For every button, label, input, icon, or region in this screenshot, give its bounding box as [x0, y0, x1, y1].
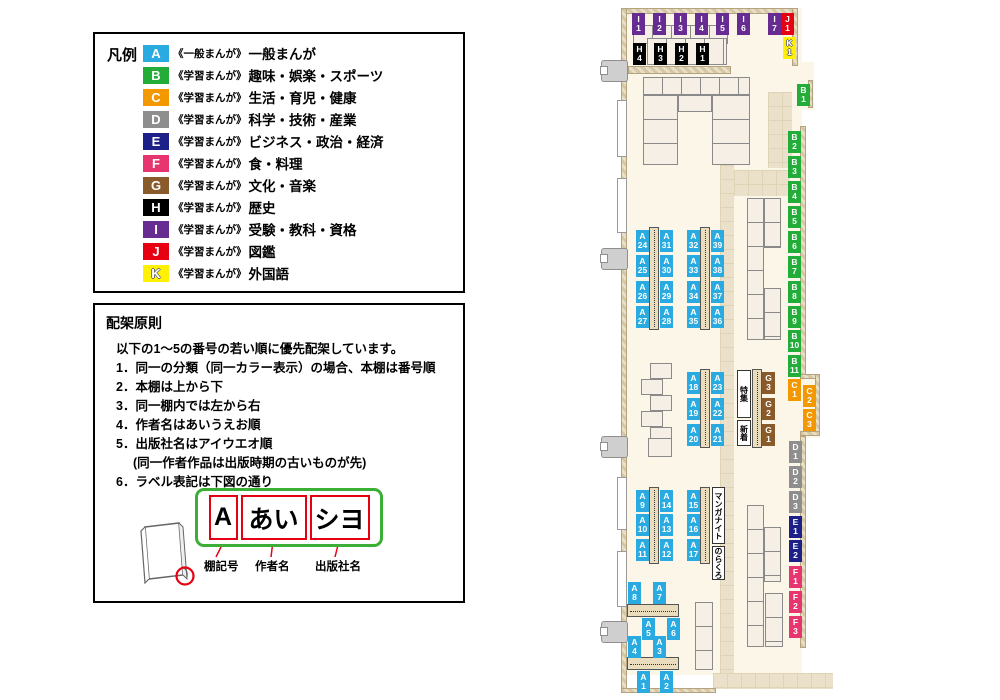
series-label: 《学習まんが》 — [173, 112, 247, 127]
door — [601, 60, 628, 82]
shelf-number: 10 — [790, 341, 799, 351]
shelf-number: 9 — [792, 317, 797, 327]
legend-item-b: B《学習まんが》趣味・娯楽・スポーツ — [143, 64, 384, 86]
shelf-number: 4 — [792, 192, 797, 202]
shelf-number: 7 — [772, 24, 777, 34]
shelf-label-c3: C3 — [803, 409, 816, 431]
shelf-label-a29: A29 — [660, 281, 673, 303]
shelf-number: 29 — [662, 292, 671, 302]
shelf-number: 2 — [679, 54, 684, 64]
shelf-label-a17: A17 — [687, 539, 700, 561]
category-badge-k: K — [143, 265, 169, 282]
series-label: 《学習まんが》 — [173, 90, 247, 105]
shelf-number: 36 — [713, 317, 722, 327]
shelf-block — [765, 593, 783, 647]
door — [601, 436, 628, 458]
wall-pillar — [617, 100, 627, 157]
shelf-number: 1 — [793, 452, 798, 462]
shelf-label-a8: A8 — [628, 582, 641, 604]
shelf-number: 31 — [662, 241, 671, 251]
shelf-label-a11: A11 — [636, 539, 649, 561]
shelf-label-c2: C2 — [803, 385, 816, 407]
shelf-number: 14 — [662, 501, 671, 511]
series-label: 《学習まんが》 — [173, 244, 247, 259]
page: { "legend": { "title": "凡例", "items": [ … — [0, 0, 1000, 700]
shelf-number: 37 — [713, 292, 722, 302]
shelf-number: 6 — [792, 242, 797, 252]
category-label: 受験・教科・資格 — [249, 219, 357, 239]
shelf-number: 4 — [632, 647, 637, 657]
map-corridor — [734, 170, 790, 196]
shelf-number: 2 — [807, 396, 812, 406]
rule-item-2: 2．本棚は上から下 — [116, 378, 435, 397]
shelf-number: 6 — [671, 629, 676, 639]
caption-author: 作者名 — [255, 558, 290, 574]
shelf-number: 19 — [689, 409, 698, 419]
shelf-number: 5 — [720, 24, 725, 34]
category-badge-b: B — [143, 67, 169, 84]
shelf-number: 3 — [793, 627, 798, 637]
shelf-number: 38 — [713, 266, 722, 276]
shelf-number: 1 — [792, 390, 797, 400]
shelf-label-h1: H1 — [696, 43, 709, 65]
label-shelf-code: A — [209, 495, 238, 540]
shelf-number: 1 — [793, 527, 798, 537]
map-note-2: 新着 — [737, 420, 751, 446]
shelf-block — [764, 527, 781, 582]
category-badge-c: C — [143, 89, 169, 106]
shelf-number: 13 — [662, 525, 671, 535]
shelf-label-a6: A6 — [667, 618, 680, 640]
series-label: 《一般まんが》 — [173, 46, 247, 61]
category-badge-e: E — [143, 133, 169, 150]
map-note-1: 特集 — [737, 370, 751, 418]
shelf-number: 1 — [636, 24, 641, 34]
shelf-number: 12 — [662, 550, 671, 560]
shelf-label-a38: A38 — [711, 255, 724, 277]
shelf-number: 2 — [766, 409, 771, 419]
shelf-label-d2: D2 — [789, 466, 802, 488]
shelf-label-a12: A12 — [660, 539, 673, 561]
shelf-number: 16 — [689, 525, 698, 535]
display-table — [650, 395, 672, 411]
category-label: 一般まんが — [249, 43, 317, 63]
shelf-label-a25: A25 — [636, 255, 649, 277]
shelf-label-a28: A28 — [660, 306, 673, 328]
shelf-strip — [627, 657, 679, 670]
shelf-number: 4 — [699, 24, 704, 34]
shelf-number: 30 — [662, 266, 671, 276]
shelf-number: 3 — [793, 502, 798, 512]
shelf-label-a10: A10 — [636, 514, 649, 536]
shelf-label-i3: I3 — [674, 13, 687, 35]
shelf-number: 2 — [657, 24, 662, 34]
label-publisher: シヨ — [310, 495, 370, 540]
shelf-number: 25 — [638, 266, 647, 276]
legend-item-e: E《学習まんが》ビジネス・政治・経済 — [143, 130, 384, 152]
display-table — [648, 438, 672, 457]
shelf-number: 27 — [638, 317, 647, 327]
shelf-label-b8: B8 — [788, 281, 801, 303]
legend-item-i: I《学習まんが》受験・教科・資格 — [143, 218, 384, 240]
shelf-number: 3 — [807, 420, 812, 430]
map-corridor — [713, 673, 833, 689]
shelf-number: 11 — [638, 550, 647, 560]
shelf-number: 33 — [689, 266, 698, 276]
shelf-number: 1 — [793, 577, 798, 587]
shelf-number: 28 — [662, 317, 671, 327]
shelf-label-k1: K1 — [783, 37, 796, 59]
shelf-label-a35: A35 — [687, 306, 700, 328]
shelf-number: 18 — [689, 383, 698, 393]
shelf-label-i2: I2 — [653, 13, 666, 35]
shelf-label-a39: A39 — [711, 230, 724, 252]
shelf-number: 1 — [801, 95, 806, 105]
shelf-number: 4 — [637, 54, 642, 64]
shelf-label-i4: I4 — [695, 13, 708, 35]
shelf-number: 35 — [689, 317, 698, 327]
series-label: 《学習まんが》 — [173, 68, 247, 83]
shelf-label-e1: E1 — [789, 516, 802, 538]
shelf-label-a16: A16 — [687, 514, 700, 536]
wall-pillar — [617, 477, 627, 530]
category-badge-g: G — [143, 177, 169, 194]
shelf-label-b1: B1 — [797, 84, 810, 106]
category-label: 食・料理 — [249, 153, 303, 173]
category-label: 科学・技術・産業 — [249, 109, 357, 129]
shelf-label-g2: G2 — [762, 398, 775, 420]
shelf-label-a15: A15 — [687, 490, 700, 512]
shelf-block — [747, 198, 764, 340]
legend-item-j: J《学習まんが》図鑑 — [143, 240, 384, 262]
shelf-label-a37: A37 — [711, 281, 724, 303]
category-label: 歴史 — [249, 197, 276, 217]
shelf-label-c1: C1 — [788, 379, 801, 401]
shelf-label-i6: I6 — [737, 13, 750, 35]
shelf-block — [764, 288, 781, 340]
legend-item-d: D《学習まんが》科学・技術・産業 — [143, 108, 384, 130]
shelf-label-d1: D1 — [789, 441, 802, 463]
shelf-label-a2: A2 — [660, 671, 673, 693]
rule-item-3: 3．同一棚内では左から右 — [116, 397, 435, 416]
shelf-number: 2 — [793, 551, 798, 561]
shelf-number: 21 — [713, 435, 722, 445]
shelf-strip — [752, 369, 762, 448]
shelf-number: 1 — [766, 435, 771, 445]
series-label: 《学習まんが》 — [173, 156, 247, 171]
legend-item-c: C《学習まんが》生活・育児・健康 — [143, 86, 384, 108]
display-table — [641, 411, 663, 427]
series-label: 《学習まんが》 — [173, 134, 247, 149]
shelf-label-a23: A23 — [711, 372, 724, 394]
shelf-strip — [649, 487, 659, 564]
shelf-label-i7: I7 — [768, 13, 781, 35]
legend-item-f: F《学習まんが》食・料理 — [143, 152, 384, 174]
shelf-label-a36: A36 — [711, 306, 724, 328]
shelf-block — [747, 505, 764, 647]
shelf-label-a13: A13 — [660, 514, 673, 536]
shelf-number: 2 — [664, 682, 669, 692]
shelf-label-a4: A4 — [628, 636, 641, 658]
shelf-number: 17 — [689, 550, 698, 560]
legend-item-a: A《一般まんが》一般まんが — [143, 42, 384, 64]
shelf-label-a27: A27 — [636, 306, 649, 328]
rule-item-1: 1．同一の分類（同一カラー表示）の場合、本棚は番号順 — [116, 359, 435, 378]
shelf-number: 9 — [640, 501, 645, 511]
shelf-number: 32 — [689, 241, 698, 251]
shelf-label-g1: G1 — [762, 424, 775, 446]
shelf-number: 11 — [790, 366, 799, 376]
rules-panel: 配架原則 以下の1〜5の番号の若い順に優先配架しています。 1．同一の分類（同一… — [93, 303, 465, 603]
shelf-label-a14: A14 — [660, 490, 673, 512]
shelf-label-b4: B4 — [788, 181, 801, 203]
wall-pillar — [617, 551, 627, 607]
door — [601, 621, 628, 643]
shelf-label-a1: A1 — [637, 671, 650, 693]
shelf-label-a20: A20 — [687, 424, 700, 446]
shelf-label-b6: B6 — [788, 231, 801, 253]
shelf-number: 3 — [657, 647, 662, 657]
legend-item-g: G《学習まんが》文化・音楽 — [143, 174, 384, 196]
shelf-number: 5 — [646, 629, 651, 639]
shelf-label-f1: F1 — [789, 566, 802, 588]
map-note-3: マンガナイト — [712, 487, 725, 544]
shelf-label-a9: A9 — [636, 490, 649, 512]
rules-intro: 以下の1〜5の番号の若い順に優先配架しています。 — [116, 338, 403, 357]
shelf-label-h3: H3 — [654, 43, 667, 65]
shelf-number: 22 — [713, 409, 722, 419]
shelf-strip — [700, 369, 710, 448]
category-label: 外国語 — [249, 263, 290, 283]
legend-item-k: K《学習まんが》外国語 — [143, 262, 384, 284]
category-label: 趣味・娯楽・スポーツ — [249, 65, 384, 85]
shelf-number: 20 — [689, 435, 698, 445]
rules-list: 1．同一の分類（同一カラー表示）の場合、本棚は番号順2．本棚は上から下3．同一棚… — [116, 359, 435, 492]
shelf-number: 3 — [766, 383, 771, 393]
shelf-label-i5: I5 — [716, 13, 729, 35]
shelf-number: 6 — [741, 24, 746, 34]
shelf-number: 2 — [793, 602, 798, 612]
shelf-number: 7 — [657, 593, 662, 603]
shelf-label-e2: E2 — [789, 540, 802, 562]
legend-items: A《一般まんが》一般まんがB《学習まんが》趣味・娯楽・スポーツC《学習まんが》生… — [143, 42, 384, 284]
shelf-number: 1 — [700, 54, 705, 64]
shelf-block — [643, 77, 750, 95]
rule-item-5: 5．出版社名はアイウエオ順 — [116, 435, 435, 454]
shelf-label-a31: A31 — [660, 230, 673, 252]
shelf-label-a30: A30 — [660, 255, 673, 277]
shelf-number: 8 — [632, 593, 637, 603]
rules-title: 配架原則 — [106, 313, 162, 333]
shelf-strip — [700, 487, 710, 564]
label-example: A あい シヨ — [195, 488, 383, 547]
shelf-label-a19: A19 — [687, 398, 700, 420]
category-badge-j: J — [143, 243, 169, 260]
shelf-number: 26 — [638, 292, 647, 302]
shelf-number: 34 — [689, 292, 698, 302]
map-note-4: のらくろ — [712, 546, 725, 580]
shelf-label-g3: G3 — [762, 372, 775, 394]
series-label: 《学習まんが》 — [173, 200, 247, 215]
category-label: ビジネス・政治・経済 — [249, 131, 384, 151]
shelf-label-a3: A3 — [653, 636, 666, 658]
shelf-label-a18: A18 — [687, 372, 700, 394]
shelf-label-b11: B11 — [788, 355, 801, 377]
caption-publisher: 出版社名 — [315, 558, 361, 574]
shelf-strip — [627, 604, 679, 617]
shelf-number: 23 — [713, 383, 722, 393]
shelf-label-h4: H4 — [633, 43, 646, 65]
door — [601, 248, 628, 270]
legend-title: 凡例 — [107, 44, 137, 65]
label-author: あい — [241, 495, 307, 540]
shelf-number: 3 — [792, 167, 797, 177]
shelf-block — [678, 95, 712, 112]
shelf-label-b10: B10 — [788, 330, 801, 352]
shelf-label-a32: A32 — [687, 230, 700, 252]
wall-pillar — [617, 178, 627, 233]
shelf-number: 1 — [787, 48, 792, 58]
shelf-number: 2 — [793, 477, 798, 487]
legend-item-h: H《学習まんが》歴史 — [143, 196, 384, 218]
shelf-label-f2: F2 — [789, 591, 802, 613]
shelf-label-b5: B5 — [788, 206, 801, 228]
shelf-label-a21: A21 — [711, 424, 724, 446]
category-label: 文化・音楽 — [249, 175, 317, 195]
shelf-label-a34: A34 — [687, 281, 700, 303]
shelf-label-b7: B7 — [788, 256, 801, 278]
caption-shelf-code: 棚記号 — [204, 558, 239, 574]
map-wall — [628, 66, 731, 74]
shelf-label-a33: A33 — [687, 255, 700, 277]
shelf-number: 5 — [792, 217, 797, 227]
shelf-number: 1 — [785, 24, 790, 34]
shelf-block — [712, 95, 750, 165]
shelf-label-b3: B3 — [788, 156, 801, 178]
shelf-strip — [649, 227, 659, 330]
shelf-strip — [700, 227, 710, 330]
shelf-label-f3: F3 — [789, 616, 802, 638]
shelf-label-a22: A22 — [711, 398, 724, 420]
shelf-number: 10 — [638, 525, 647, 535]
series-label: 《学習まんが》 — [173, 266, 247, 281]
display-table — [641, 379, 663, 395]
display-table — [650, 363, 672, 379]
shelf-number: 39 — [713, 241, 722, 251]
shelf-label-h2: H2 — [675, 43, 688, 65]
category-label: 生活・育児・健康 — [249, 87, 357, 107]
shelf-label-a7: A7 — [653, 582, 666, 604]
shelf-label-b9: B9 — [788, 306, 801, 328]
shelf-label-b2: B2 — [788, 131, 801, 153]
category-badge-h: H — [143, 199, 169, 216]
shelf-number: 2 — [792, 142, 797, 152]
shelf-label-a26: A26 — [636, 281, 649, 303]
category-badge-i: I — [143, 221, 169, 238]
rule-item-6: (同一作者作品は出版時期の古いものが先) — [116, 454, 435, 473]
category-badge-a: A — [143, 45, 169, 62]
series-label: 《学習まんが》 — [173, 222, 247, 237]
shelf-number: 24 — [638, 241, 647, 251]
legend-panel: 凡例 A《一般まんが》一般まんがB《学習まんが》趣味・娯楽・スポーツC《学習まん… — [93, 32, 465, 293]
shelf-block — [695, 602, 713, 670]
category-badge-d: D — [143, 111, 169, 128]
category-label: 図鑑 — [249, 241, 276, 261]
shelf-number: 3 — [658, 54, 663, 64]
shelf-block — [643, 95, 678, 165]
shelf-number: 8 — [792, 292, 797, 302]
shelf-label-j1: J1 — [781, 13, 794, 35]
shelf-label-i1: I1 — [632, 13, 645, 35]
category-badge-f: F — [143, 155, 169, 172]
shelf-label-d3: D3 — [789, 491, 802, 513]
shelf-block — [764, 198, 781, 248]
shelf-number: 3 — [678, 24, 683, 34]
shelf-label-a24: A24 — [636, 230, 649, 252]
shelf-number: 7 — [792, 267, 797, 277]
rule-item-4: 4．作者名はあいうえお順 — [116, 416, 435, 435]
series-label: 《学習まんが》 — [173, 178, 247, 193]
shelf-number: 1 — [641, 682, 646, 692]
shelf-number: 15 — [689, 501, 698, 511]
